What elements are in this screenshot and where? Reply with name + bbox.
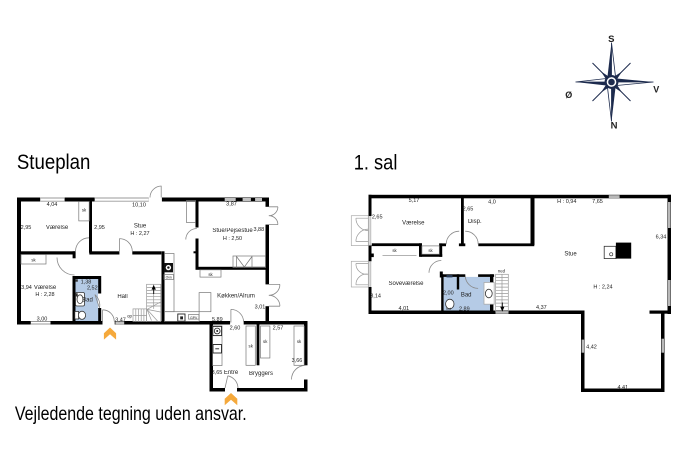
svg-text:3,66: 3,66: [292, 358, 303, 364]
svg-text:H : 2,50: H : 2,50: [223, 236, 242, 242]
svg-text:2,57: 2,57: [273, 326, 284, 332]
svg-text:4,04: 4,04: [47, 202, 58, 208]
svg-text:H : 2,24: H : 2,24: [593, 285, 612, 291]
svg-text:Værelse: Værelse: [46, 225, 69, 231]
svg-text:S: S: [608, 34, 614, 45]
svg-text:Køkken/Alrum: Køkken/Alrum: [217, 293, 255, 299]
svg-text:3,14: 3,14: [370, 294, 381, 300]
svg-text:hvt: hvt: [446, 307, 451, 311]
svg-text:Disp.: Disp.: [468, 219, 482, 225]
svg-text:Stue: Stue: [134, 224, 147, 230]
svg-text:7,65: 7,65: [592, 199, 603, 205]
svg-text:Bad: Bad: [461, 293, 472, 299]
svg-text:6,34: 6,34: [656, 235, 667, 241]
svg-text:Stue/Pejsestue: Stue/Pejsestue: [212, 228, 253, 234]
svg-text:5,89: 5,89: [212, 317, 223, 323]
svg-text:Soveværelse: Soveværelse: [388, 281, 424, 287]
svg-text:3,01: 3,01: [255, 305, 266, 311]
svg-text:4,42: 4,42: [586, 345, 597, 351]
svg-text:Stue: Stue: [564, 252, 577, 258]
svg-text:10,10: 10,10: [132, 203, 146, 209]
svg-text:Bryggers: Bryggers: [249, 371, 273, 377]
svg-text:3,87: 3,87: [226, 202, 237, 208]
svg-text:ned: ned: [498, 269, 506, 274]
svg-text:Hall: Hall: [117, 294, 127, 300]
svg-text:Bad: Bad: [82, 298, 93, 304]
svg-text:3,65: 3,65: [212, 370, 223, 376]
svg-text:2,89: 2,89: [459, 306, 470, 312]
svg-text:3,88: 3,88: [253, 227, 264, 233]
svg-text:4,0: 4,0: [488, 200, 496, 206]
svg-text:2,52: 2,52: [87, 285, 98, 291]
svg-text:3,47: 3,47: [115, 317, 126, 323]
svg-text:2,00: 2,00: [443, 291, 454, 297]
svg-text:N: N: [611, 121, 618, 132]
svg-text:4,37: 4,37: [536, 305, 547, 311]
svg-text:Entré: Entré: [224, 370, 239, 376]
svg-text:1. sal: 1. sal: [354, 152, 398, 175]
svg-text:Ovn: Ovn: [166, 276, 172, 280]
svg-text:2,65: 2,65: [463, 207, 474, 213]
svg-text:4,41: 4,41: [617, 385, 628, 391]
svg-text:Vejledende tegning uden ansvar: Vejledende tegning uden ansvar.: [15, 403, 247, 425]
svg-text:3,00: 3,00: [37, 316, 48, 322]
svg-text:2,95: 2,95: [21, 225, 32, 231]
svg-text:2,65: 2,65: [372, 215, 383, 221]
svg-text:2,60: 2,60: [230, 326, 241, 332]
svg-text:5,17: 5,17: [409, 198, 420, 204]
svg-text:Værelse: Værelse: [34, 285, 57, 291]
svg-text:V: V: [653, 85, 659, 95]
svg-text:Ø: Ø: [565, 90, 572, 100]
svg-text:Værelse: Værelse: [402, 221, 425, 227]
svg-text:H : 0,94: H : 0,94: [557, 199, 576, 205]
svg-text:GPV: GPV: [190, 316, 198, 320]
svg-text:H : 2,28: H : 2,28: [35, 292, 54, 298]
svg-text:3,94: 3,94: [21, 285, 32, 291]
svg-text:H : 2,27: H : 2,27: [130, 231, 149, 237]
svg-text:2,95: 2,95: [94, 225, 105, 231]
svg-text:4,01: 4,01: [399, 306, 410, 312]
svg-text:op: op: [127, 314, 132, 319]
svg-text:Stueplan: Stueplan: [17, 151, 91, 174]
